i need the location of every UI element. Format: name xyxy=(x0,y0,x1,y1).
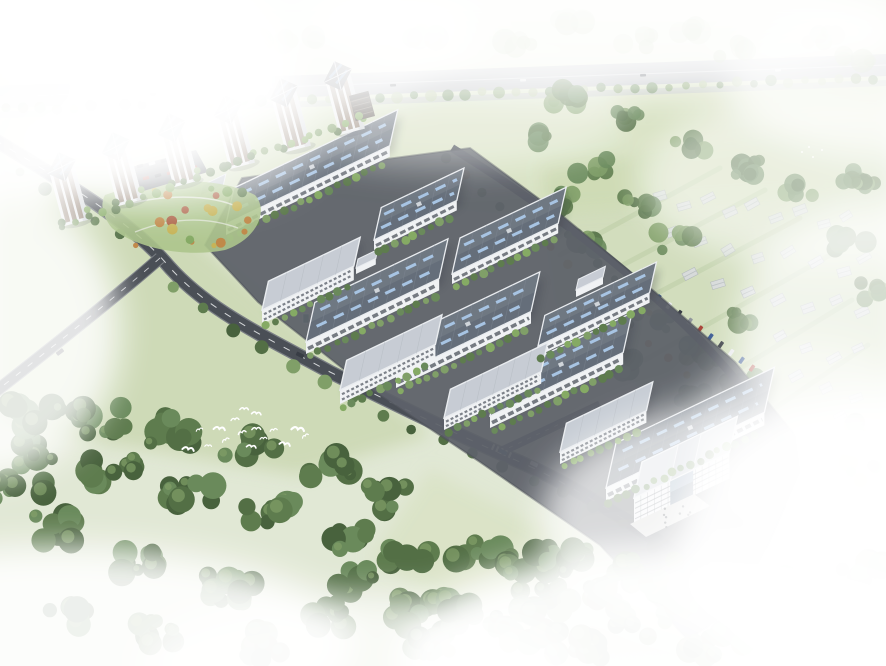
atmosphere-veil xyxy=(0,0,886,666)
industrial-park-rendering xyxy=(0,0,886,666)
mist-clouds xyxy=(0,0,886,666)
aerial-site-render xyxy=(0,0,886,666)
